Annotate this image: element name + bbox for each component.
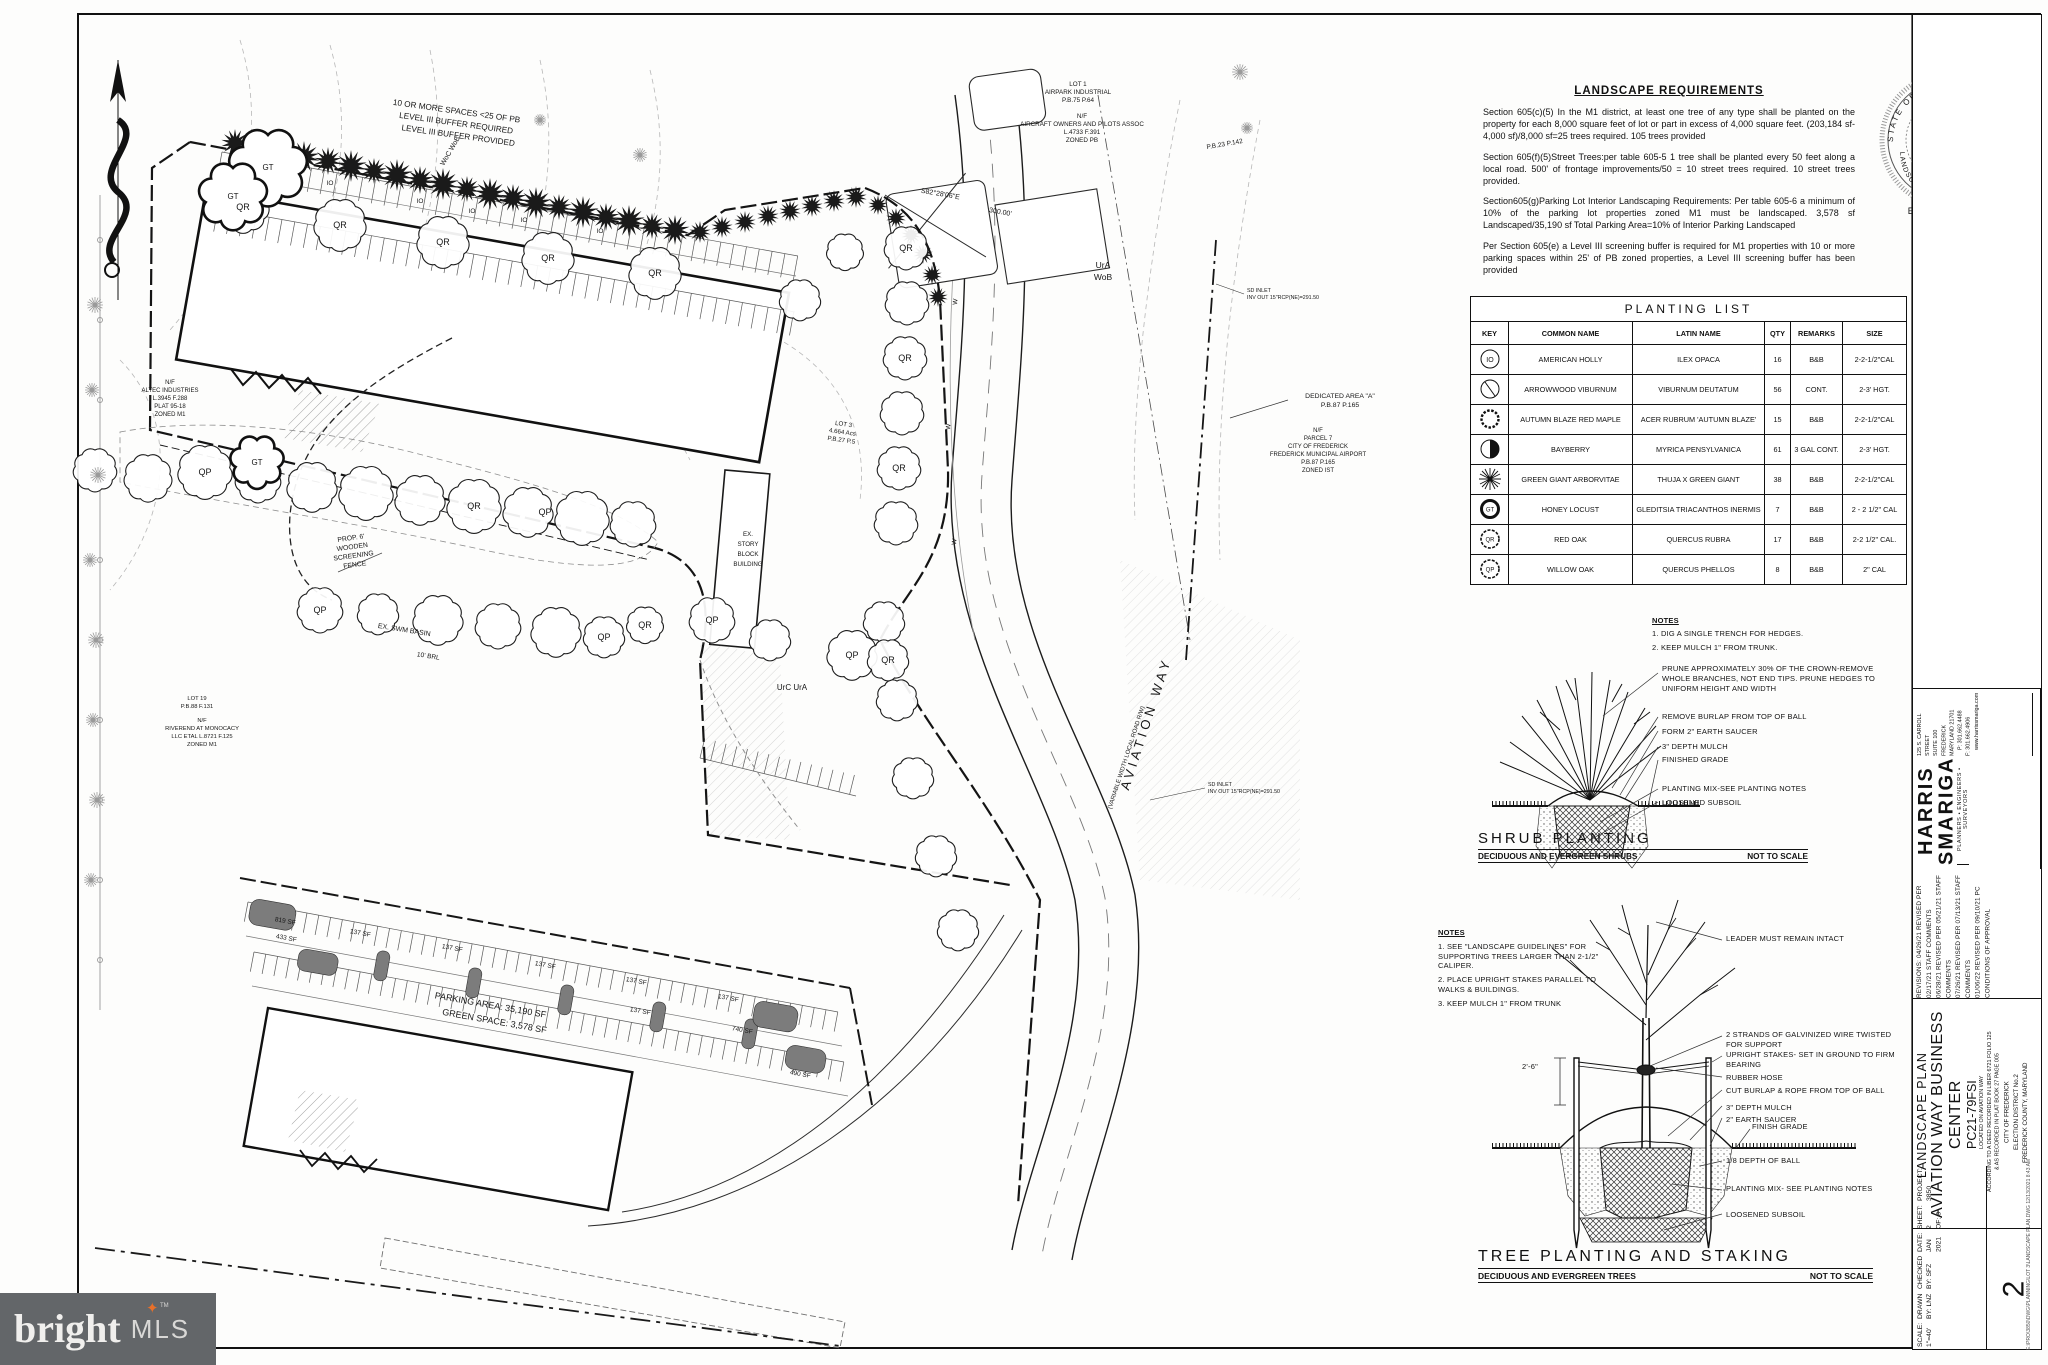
svg-text:IO: IO [417, 198, 424, 205]
svg-text:QR: QR [899, 243, 913, 253]
title-block-firm: REVISIONS: 04/26/21 REVISED PER 02/17/21… [1912, 688, 2042, 1002]
tree-callout: LOOSENED SUBSOIL [1726, 1210, 1901, 1220]
svg-text:QP: QP [705, 615, 718, 625]
svg-text:QP: QP [313, 605, 326, 615]
field-date: DATE:JAN 2021 [1913, 1231, 1987, 1255]
red-oak-key-icon: QR [1479, 528, 1501, 550]
svg-text:AIRCRAFT OWNERS AND PILOTS ASS: AIRCRAFT OWNERS AND PILOTS ASSOC [1020, 121, 1144, 128]
svg-text:QR: QR [541, 253, 555, 263]
svg-text:QR: QR [648, 268, 662, 278]
plat-line [1098, 95, 1190, 640]
svg-text:INV OUT 15"RCP(NE)=291.50: INV OUT 15"RCP(NE)=291.50 [1247, 295, 1319, 301]
svg-text:IO: IO [1486, 357, 1494, 364]
field-sheet: SHEET: 2OF: 3 [1913, 1203, 1987, 1231]
svg-text:RIVEREND AT MONOCACY: RIVEREND AT MONOCACY [165, 726, 239, 732]
svg-text:P.B.88 F.131: P.B.88 F.131 [181, 704, 213, 710]
north-arrow [105, 60, 126, 300]
svg-text:137 SF: 137 SF [717, 993, 739, 1004]
requirements-title: LANDSCAPE REQUIREMENTS [1483, 84, 1855, 99]
svg-text:P.B.23 P.142: P.B.23 P.142 [1206, 138, 1244, 151]
svg-text:QP: QP [597, 632, 610, 642]
svg-text:WoC WoB: WoC WoB [440, 135, 462, 167]
svg-text:DEDICATED AREA "A": DEDICATED AREA "A" [1305, 393, 1375, 400]
arborvitae-key-icon [1479, 468, 1501, 490]
svg-text:GT: GT [262, 163, 273, 172]
title-block-fields: SCALE:1"=40' DRAWNBY: LNZ CHECKEDBY: SFZ… [1912, 1228, 1988, 1350]
svg-text:QR: QR [638, 620, 652, 630]
table-row: QR RED OAKQUERCUS RUBRA 17B&B2-2 1/2" CA… [1471, 525, 1907, 555]
svg-text:LOT 1: LOT 1 [1069, 81, 1087, 88]
shrub-callout: 3" DEPTH MULCH [1662, 742, 1882, 752]
title-block-spacer [1912, 14, 2042, 692]
svg-text:N/F: N/F [165, 380, 175, 386]
shrub-callout: REMOVE BURLAP FROM TOP OF BALL [1662, 712, 1882, 722]
table-row: QP WILLOW OAKQUERCUS PHELLOS 8B&B2" CAL [1471, 555, 1907, 585]
svg-text:N/F: N/F [1313, 428, 1323, 434]
tree-detail-title: TREE PLANTING AND STAKING [1478, 1248, 1873, 1269]
svg-text:QR: QR [892, 463, 906, 473]
shrub-callout: FINISHED GRADE [1662, 755, 1882, 765]
svg-text:IO: IO [597, 228, 604, 235]
table-row: GT HONEY LOCUSTGLEDITSIA TRIACANTHOS INE… [1471, 495, 1907, 525]
svg-text:IO: IO [521, 217, 528, 224]
table-row: IO AMERICAN HOLLYILEX OPACA 16B&B2-2-1/2… [1471, 345, 1907, 375]
planting-list-table: PLANTING LIST KEY COMMON NAME LATIN NAME… [1470, 296, 1907, 585]
maple-key-icon [1479, 408, 1501, 430]
svg-text:QR: QR [1485, 537, 1495, 543]
tree-callout: 2 STRANDS OF GALVINIZED WIRE TWISTED FOR… [1726, 1030, 1901, 1050]
svg-text:L.3945 F.288: L.3945 F.288 [153, 396, 188, 402]
svg-text:EX.: EX. [743, 531, 753, 538]
field-project: PROJECT:3850 [1913, 1166, 1987, 1203]
honey-locust-key-icon: GT [1479, 498, 1501, 520]
waterline-marks: W W W [945, 298, 960, 546]
landscape-requirements: LANDSCAPE REQUIREMENTS Section 605(c)(5)… [1483, 84, 1855, 286]
holly-key-icon: IO [1479, 348, 1501, 370]
svg-text:GT: GT [1485, 507, 1494, 513]
planting-list-title: PLANTING LIST [1471, 297, 1907, 322]
svg-text:W: W [945, 423, 953, 431]
table-row: BAYBERRYMYRICA PENSYLVANICA 613 GAL CONT… [1471, 435, 1907, 465]
svg-text:N/F: N/F [197, 718, 207, 724]
svg-text:QR: QR [436, 237, 450, 247]
tree-callout: CUT BURLAP & ROPE FROM TOP OF BALL [1726, 1086, 1891, 1096]
svg-text:WoB: WoB [1094, 272, 1113, 282]
firm-tagline: PLANNERS • ENGINEERS • SURVEYORS [1957, 756, 1969, 864]
tree-callout: FINISH GRADE [1752, 1122, 1927, 1132]
svg-text:SD INLET: SD INLET [1247, 288, 1272, 294]
star-icon: ✦ [146, 1299, 159, 1317]
bright-mls-logo: bright ✦ TM MLS [0, 1293, 216, 1365]
svg-text:10' BRL: 10' BRL [416, 651, 440, 662]
mls-wordmark: MLS [131, 1314, 190, 1345]
svg-text:IO: IO [469, 208, 476, 215]
svg-text:UrA: UrA [1096, 260, 1111, 270]
svg-text:137 SF: 137 SF [534, 960, 556, 971]
svg-text:QR: QR [333, 220, 347, 230]
viburnum-key-icon [1479, 378, 1501, 400]
revisions-list: REVISIONS: 04/26/21 REVISED PER 02/17/21… [1913, 869, 2041, 1001]
willow-oak-key-icon: QP [1479, 558, 1501, 580]
tree-callout: 1/8 DEPTH OF BALL [1726, 1156, 1901, 1166]
shrub-callout: FORM 2" EARTH SAUCER [1662, 727, 1882, 737]
svg-text:FENCE: FENCE [343, 560, 367, 570]
tree-detail-title-block: TREE PLANTING AND STAKING DECIDUOUS AND … [1478, 1248, 1873, 1283]
svg-text:BLOCK: BLOCK [738, 551, 760, 558]
svg-text:QP: QP [538, 507, 551, 517]
svg-text:N/F: N/F [1077, 113, 1087, 120]
svg-text:QR: QR [467, 501, 481, 511]
svg-text:ALTEC INDUSTRIES: ALTEC INDUSTRIES [142, 388, 199, 394]
field-drawn: DRAWNBY: LNZ [1913, 1291, 1987, 1320]
svg-text:STORY: STORY [737, 541, 758, 548]
firm-address: 125 S. CARROLL STREET SUITE 100 FREDERIC… [1916, 693, 2033, 756]
svg-text:QP: QP [198, 467, 211, 477]
shrub-notes: NOTES 1. DIG A SINGLE TRENCH FOR HEDGES.… [1652, 616, 1847, 656]
tree-callout: RUBBER HOSE [1726, 1073, 1901, 1083]
field-checked: CHECKEDBY: SFZ [1913, 1254, 1987, 1291]
svg-text:LOT 19: LOT 19 [187, 696, 206, 702]
svg-text:QR: QR [898, 353, 912, 363]
svg-text:BUILDING: BUILDING [733, 561, 762, 568]
bright-wordmark: bright [14, 1309, 121, 1349]
svg-text:L.4733 F.391: L.4733 F.391 [1064, 129, 1101, 136]
file-note: E:\PRO\3850\DWG\PLANNING\LOT 3\LANDSCAPE… [2026, 1040, 2040, 1350]
tree-notes: NOTES 1. SEE "LANDSCAPE GUIDELINES" FOR … [1438, 928, 1623, 1012]
svg-text:GT: GT [227, 192, 238, 201]
svg-text:P.B.87 P.165: P.B.87 P.165 [1301, 460, 1335, 466]
svg-text:W: W [951, 538, 959, 546]
tree-callout: LEADER MUST REMAIN INTACT [1726, 934, 1876, 944]
svg-text:IO: IO [327, 180, 334, 187]
svg-text:P.B.87 P.165: P.B.87 P.165 [1321, 402, 1360, 409]
shrub-callout: LOOSENED SUBSOIL [1662, 798, 1882, 808]
tree-dimension: 2'-6" [1522, 1062, 1538, 1072]
svg-text:W: W [952, 298, 960, 306]
tree-callout: PLANTING MIX- SEE PLANTING NOTES [1726, 1184, 1901, 1194]
bayberry-key-icon [1479, 438, 1501, 460]
landscape-plan-sheet: W W W 10 OR MORE SPACES <25 OF PB LEVEL … [0, 0, 2048, 1365]
shrub-detail-title: SHRUB PLANTING [1478, 830, 1808, 850]
table-row: ARROWWOOD VIBURNUMVIBURNUM DEUTATUM 56CO… [1471, 375, 1907, 405]
svg-text:LLC ETAL L.8721 F.125: LLC ETAL L.8721 F.125 [171, 734, 232, 740]
tree-callout: UPRIGHT STAKES- SET IN GROUND TO FIRM BE… [1726, 1050, 1901, 1070]
field-scale: SCALE:1"=40' [1913, 1321, 1987, 1349]
shrub-detail-title-block: SHRUB PLANTING DECIDUOUS AND EVERGREEN S… [1478, 830, 1808, 863]
svg-text:ZONED M1: ZONED M1 [187, 742, 217, 748]
svg-text:AIRPARK INDUSTRIAL: AIRPARK INDUSTRIAL [1045, 89, 1112, 96]
table-row: AUTUMN BLAZE RED MAPLEACER RUBRUM 'AUTUM… [1471, 405, 1907, 435]
svg-text:ZONED IST: ZONED IST [1302, 468, 1334, 474]
svg-text:FREDERICK MUNICIPAL AIRPORT: FREDERICK MUNICIPAL AIRPORT [1270, 452, 1367, 458]
tree-callout: 3" DEPTH MULCH [1726, 1103, 1901, 1113]
svg-text:P.B.75 P.64: P.B.75 P.64 [1062, 97, 1094, 104]
svg-text:QP: QP [1485, 567, 1494, 573]
svg-text:137 SF: 137 SF [349, 928, 371, 939]
svg-text:SD INLET: SD INLET [1208, 782, 1233, 788]
utility-line [98, 195, 103, 1010]
svg-text:ZONED PB: ZONED PB [1066, 137, 1098, 144]
svg-text:QR: QR [881, 655, 895, 665]
svg-text:UrC UrA: UrC UrA [777, 683, 808, 692]
svg-text:137 SF: 137 SF [629, 1006, 651, 1017]
shrub-callout: PLANTING MIX-SEE PLANTING NOTES [1662, 784, 1882, 794]
svg-text:ZONED M1: ZONED M1 [154, 412, 186, 418]
firm-name: HARRIS [1916, 756, 1936, 864]
svg-text:INV OUT 15"RCP(NE)=291.50: INV OUT 15"RCP(NE)=291.50 [1208, 789, 1280, 795]
shrub-callout: PRUNE APPROXIMATELY 30% OF THE CROWN-REM… [1662, 664, 1877, 693]
svg-text:GT: GT [251, 458, 262, 467]
svg-text:CITY OF FREDERICK: CITY OF FREDERICK [1288, 444, 1348, 450]
table-row: GREEN GIANT ARBORVITAETHUJA X GREEN GIAN… [1471, 465, 1907, 495]
svg-text:137 SF: 137 SF [625, 976, 647, 987]
parking-inset [95, 878, 872, 1348]
svg-text:PLAT 95-18: PLAT 95-18 [154, 404, 186, 410]
svg-text:QR: QR [236, 202, 250, 212]
svg-text:QP: QP [845, 650, 858, 660]
svg-text:PARCEL 7: PARCEL 7 [1304, 436, 1333, 442]
